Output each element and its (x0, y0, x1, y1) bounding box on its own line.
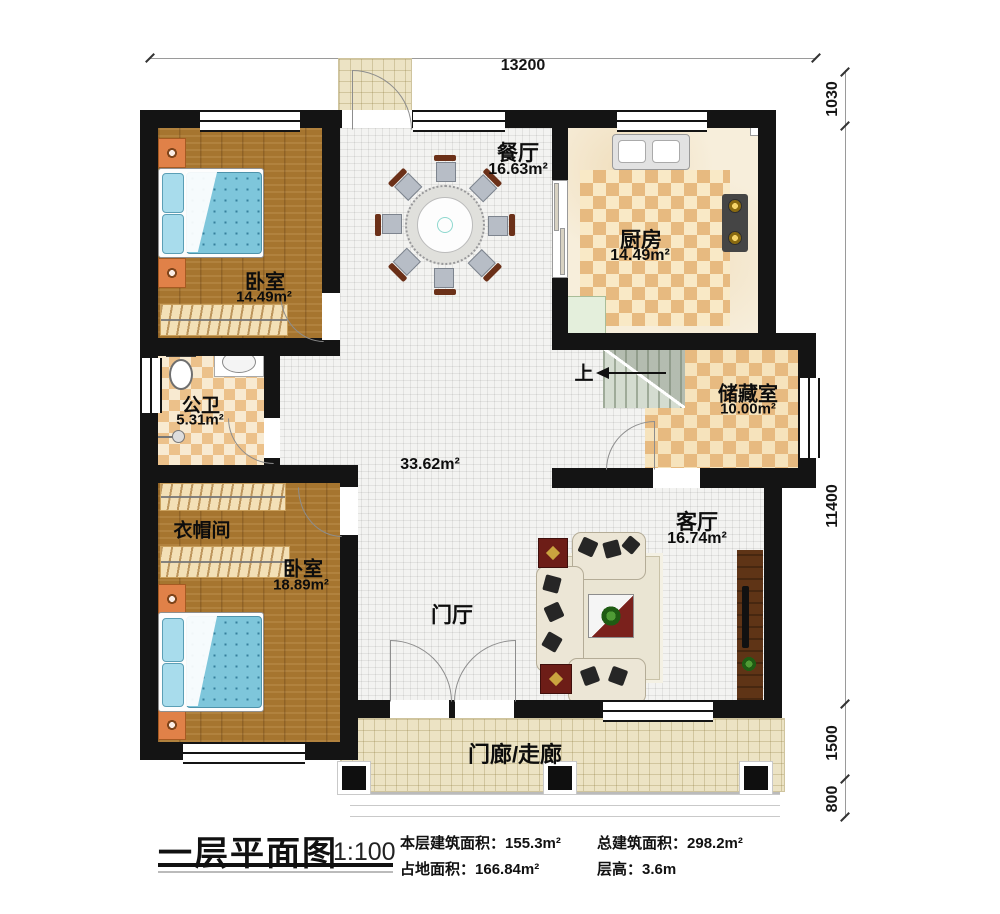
door-mullion (449, 700, 455, 718)
stairs-direction-line (600, 372, 666, 374)
nightstand (158, 138, 186, 168)
window (200, 110, 300, 132)
room-area-living: 16.74m² (667, 530, 727, 548)
porch-column (548, 766, 572, 790)
stat-storey-height: 层高：3.6m (597, 858, 676, 879)
room-label-cloakroom: 衣帽间 (173, 516, 230, 543)
wall-segment (552, 333, 758, 350)
dim-right-label-1500: 1500 (824, 725, 842, 761)
stairs-up-label: 上 (574, 359, 593, 386)
burner (728, 199, 742, 213)
wall-segment (340, 535, 358, 742)
dimension-line-top (150, 58, 816, 59)
room-label-foyer: 门厅 (431, 599, 473, 629)
room-area-storage: 10.00m² (720, 401, 776, 418)
dim-top-label: 13200 (501, 57, 546, 75)
floor-plan-sheet: 13200 1030 11400 1500 800 (0, 0, 1000, 914)
wall-segment (140, 465, 340, 483)
plant (600, 605, 622, 627)
wall-segment (552, 128, 568, 180)
side-table (538, 538, 568, 568)
window (183, 742, 305, 764)
pillow (162, 618, 184, 662)
sliding-door-leaf (554, 183, 559, 231)
wall-segment (140, 110, 158, 760)
wall-segment (700, 468, 816, 488)
dimension-line-right (845, 70, 846, 818)
side-table (540, 664, 572, 694)
porch-column (342, 766, 366, 790)
room-label-porch: 门廊/走廊 (468, 737, 562, 769)
tv (742, 586, 749, 648)
hall-area-label: 33.62m² (400, 456, 460, 474)
wall-segment (552, 468, 653, 488)
dining-table-center (437, 217, 453, 233)
stat-label: 总建筑面积： (597, 835, 687, 852)
window (140, 358, 162, 413)
stat-value: 155.3m² (505, 835, 561, 852)
stat-value: 3.6m (642, 861, 676, 878)
window (798, 378, 820, 458)
stat-label: 占地面积： (400, 861, 475, 878)
title-rule (158, 871, 393, 873)
stat-total-area: 总建筑面积：298.2m² (597, 832, 743, 853)
porch-column (744, 766, 768, 790)
wall-segment (264, 356, 280, 418)
room-area-bedroom2: 18.89m² (273, 577, 329, 594)
kitchen-sink-basin (652, 140, 680, 163)
stat-land-area: 占地面积：166.84m² (400, 858, 539, 879)
fridge (562, 296, 606, 334)
window (617, 110, 707, 132)
sliding-door-leaf (560, 228, 565, 275)
porch-steps (350, 792, 780, 822)
room-area-dining: 16.63m² (488, 161, 548, 179)
stat-label: 本层建筑面积： (400, 835, 505, 852)
plant (741, 656, 757, 672)
stat-floor-area: 本层建筑面积：155.3m² (400, 832, 561, 853)
toilet (169, 359, 193, 390)
kitchen-sink-basin (618, 140, 646, 163)
tv-cabinet (737, 550, 763, 700)
window (413, 110, 505, 132)
room-area-kitchen: 14.49m² (610, 247, 670, 265)
wall-segment (758, 333, 816, 350)
staircase-break-line (603, 348, 685, 408)
burner (728, 231, 742, 245)
stat-label: 层高： (597, 861, 642, 878)
wall-segment (552, 278, 568, 333)
room-area-bedroom1: 14.49m² (236, 289, 292, 306)
wall-segment (322, 110, 340, 293)
room-area-bathroom: 5.31m² (176, 412, 224, 429)
nightstand (158, 710, 186, 740)
cloakroom-rack (160, 546, 290, 578)
sheet-scale: 1:100 (333, 838, 396, 867)
pillow (162, 214, 184, 254)
nightstand (158, 258, 186, 288)
nightstand (158, 584, 186, 614)
wall-segment (764, 470, 782, 718)
dim-right-label-1030: 1030 (824, 81, 842, 117)
cloakroom-rack (160, 483, 286, 511)
wall-segment (140, 338, 340, 356)
wardrobe (160, 304, 288, 336)
shower-head (172, 430, 185, 443)
dim-right-label-800: 800 (824, 786, 842, 813)
sheet-title: 一层平面图 (158, 826, 338, 875)
stat-value: 298.2m² (687, 835, 743, 852)
wall-segment (340, 465, 358, 487)
door-opening (653, 468, 700, 488)
window (603, 700, 713, 722)
pillow (162, 173, 184, 213)
wall-segment (758, 110, 776, 350)
pillow (162, 663, 184, 707)
door-opening (322, 293, 340, 340)
stat-value: 166.84m² (475, 861, 539, 878)
stairs-arrow-icon (596, 367, 609, 379)
door-opening (340, 487, 358, 535)
sofa (568, 658, 646, 704)
dim-right-label-11400: 11400 (824, 484, 842, 528)
